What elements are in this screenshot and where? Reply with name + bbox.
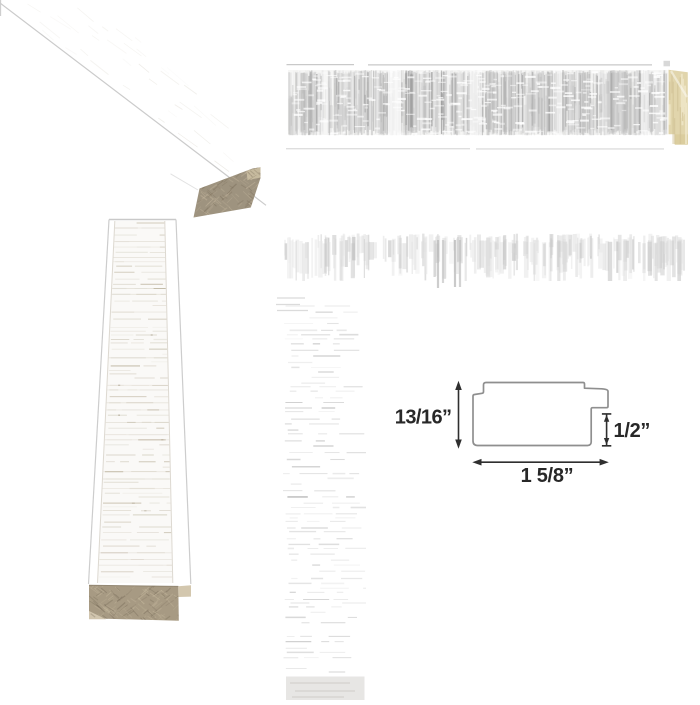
svg-text:13/16”: 13/16” <box>395 407 452 429</box>
svg-text:1/2”: 1/2” <box>614 420 651 442</box>
svg-text:1 5/8”: 1 5/8” <box>521 465 574 487</box>
